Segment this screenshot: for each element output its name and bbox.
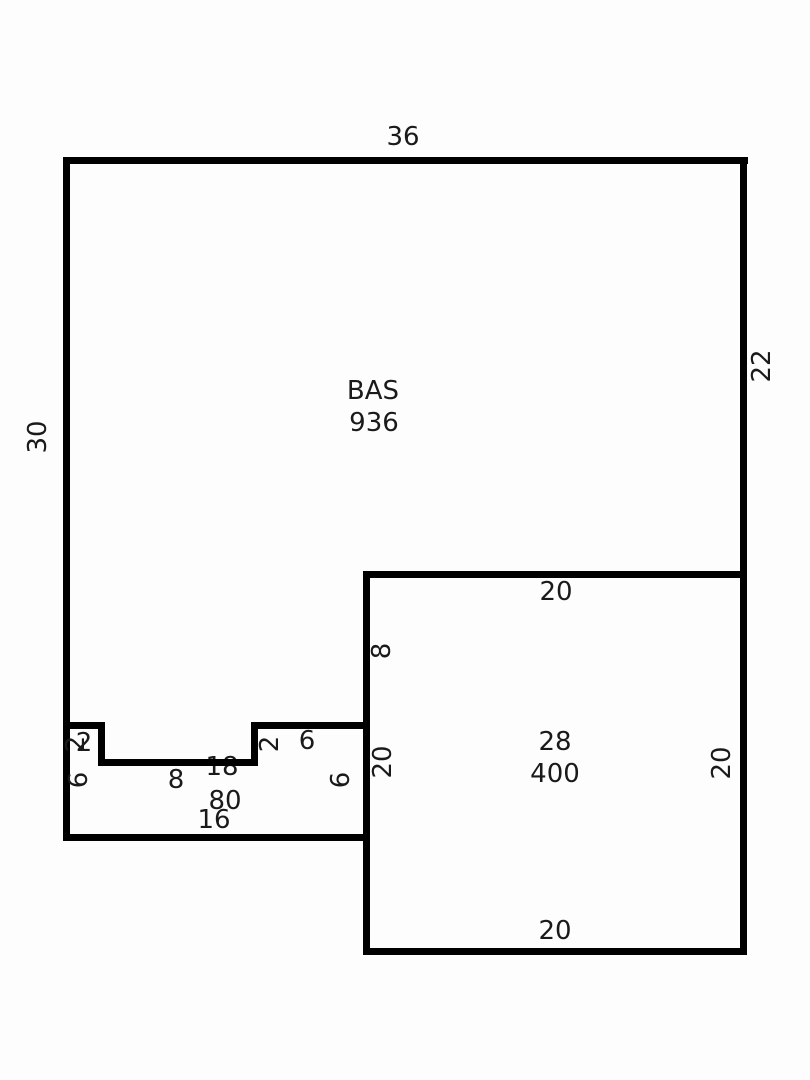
dim-outer-right-22: 22 xyxy=(749,349,775,382)
area-square-value-400: 400 xyxy=(530,761,580,787)
dim-notch-left-vert-2: 2 xyxy=(63,736,89,753)
wall-strip-bottom xyxy=(63,834,370,841)
wall-square-bottom xyxy=(363,948,747,955)
area-bas-value-936: 936 xyxy=(349,410,399,436)
dim-square-left-20: 20 xyxy=(370,745,396,778)
area-square-name-28: 28 xyxy=(538,729,571,755)
label-strip-18: 18 xyxy=(205,754,238,780)
wall-outer-top xyxy=(63,157,748,164)
wall-outer-right xyxy=(740,157,747,955)
dim-strip-bottom-16: 16 xyxy=(197,807,230,833)
dim-notch-bottom-8: 8 xyxy=(168,767,185,793)
dim-square-left-8: 8 xyxy=(369,643,395,660)
floorplan-canvas: 363022BAS936208202840020202268182668016 xyxy=(0,0,810,1080)
area-bas-name: BAS xyxy=(347,378,399,404)
dim-strip-left-6: 6 xyxy=(66,772,92,789)
dim-notch-right-vert-2: 2 xyxy=(257,736,283,753)
dim-square-top-20: 20 xyxy=(539,579,572,605)
dim-outer-top-36: 36 xyxy=(386,124,419,150)
dim-square-right-20: 20 xyxy=(709,746,735,779)
dim-outer-left-30: 30 xyxy=(25,420,51,453)
dim-strip-right-6: 6 xyxy=(328,772,354,789)
dim-notch-right-top-6: 6 xyxy=(299,728,316,754)
dim-square-bottom-20: 20 xyxy=(538,918,571,944)
